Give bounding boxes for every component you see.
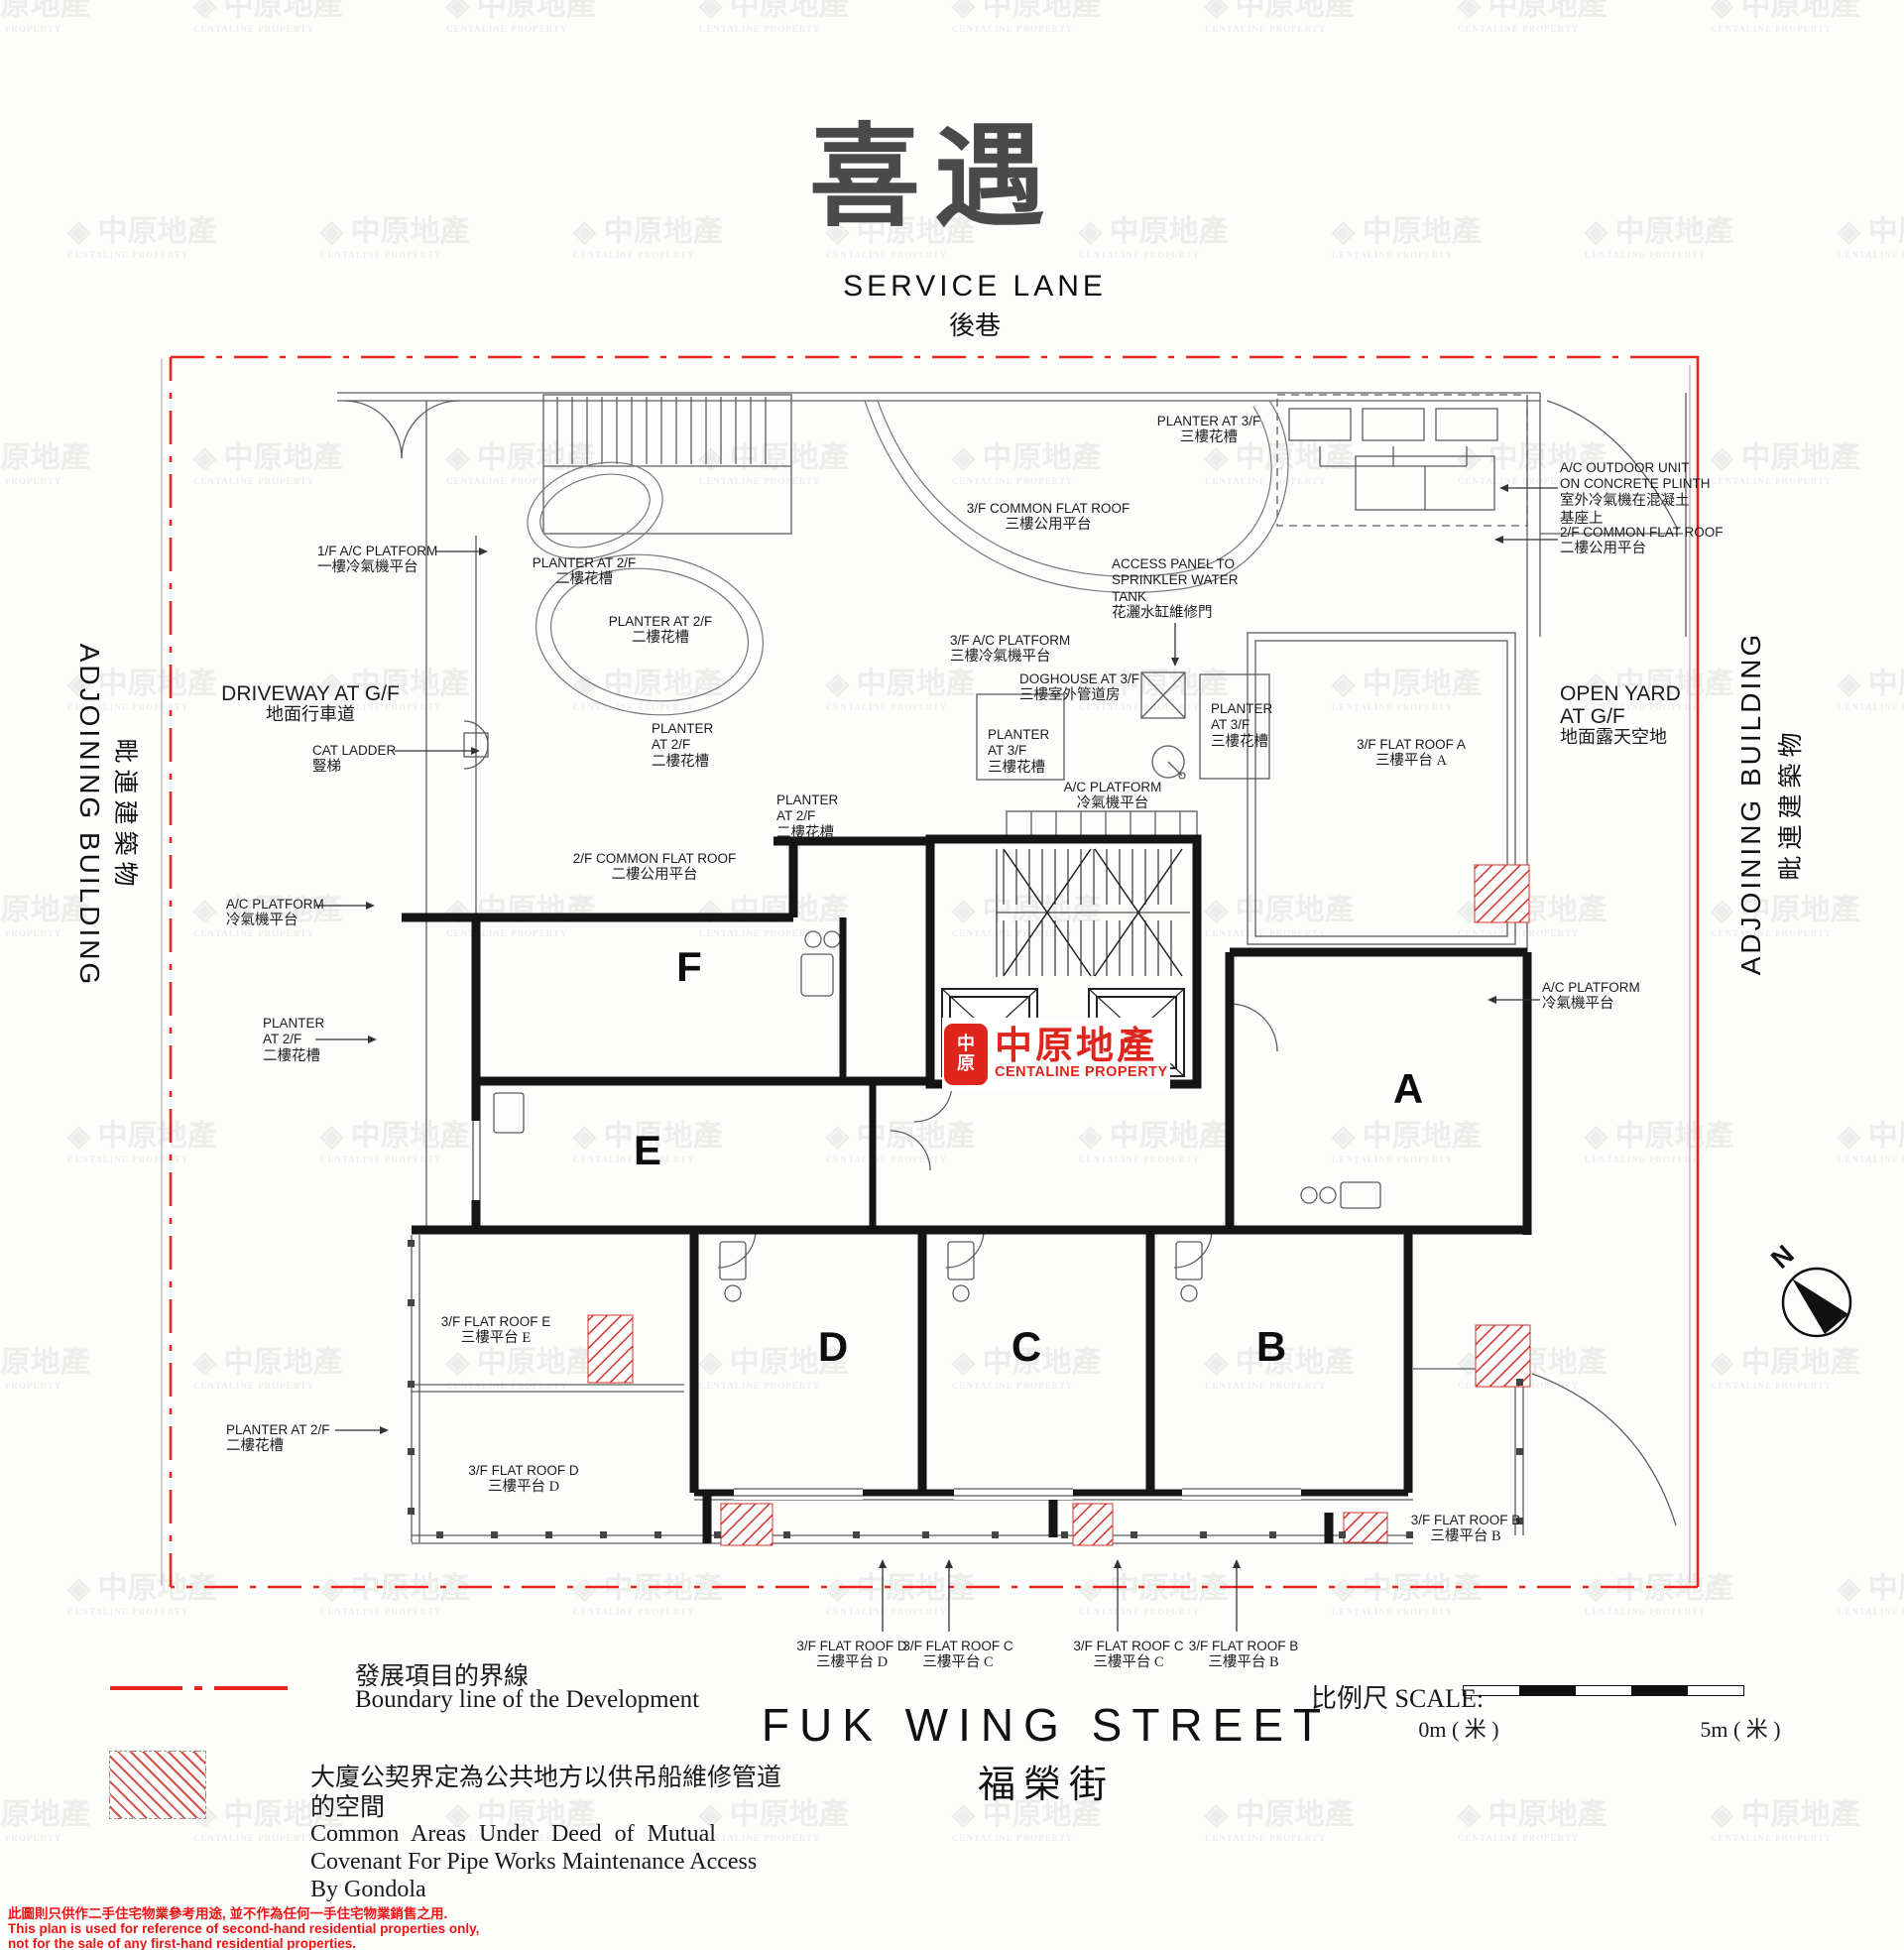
legend-boundary-sample <box>110 1686 288 1690</box>
label-doghouse: DOGHOUSE AT 3/F三樓室外管道房 <box>1019 671 1139 705</box>
label-planter-2f-6: PLANTER AT 2/F二樓花槽 <box>226 1422 330 1456</box>
unit-f: F <box>676 943 702 991</box>
disclaimer-en2: not for the sale of any first-hand resid… <box>8 1936 479 1950</box>
label-planter-2f-5: PLANTER AT 2/F二樓花槽 <box>263 1016 324 1066</box>
label-3f-flat-roof-a: 3/F FLAT ROOF A三樓平台 A <box>1357 737 1466 771</box>
label-3f-flat-roof-d: 3/F FLAT ROOF D三樓平台 D <box>796 1639 906 1672</box>
label-planter-2f-1: PLANTER AT 2/F二樓花槽 <box>533 555 637 589</box>
label-ac-platform-left: A/C PLATFORM冷氣機平台 <box>226 897 324 930</box>
disclaimer: 此圖則只供作二手住宅物業參考用途, 並不作為任何一手住宅物業銷售之用. This… <box>8 1906 479 1950</box>
unit-d: D <box>818 1323 848 1371</box>
label-3f-flat-roof-d-in: 3/F FLAT ROOF D三樓平台 D <box>468 1463 578 1497</box>
unit-c: C <box>1011 1323 1041 1371</box>
disclaimer-zh: 此圖則只供作二手住宅物業參考用途, 並不作為任何一手住宅物業銷售之用. <box>8 1906 479 1921</box>
legend-common-zh2: 的空間 <box>310 1787 385 1823</box>
annotation-arrows <box>315 488 1558 1632</box>
label-2f-common-flat-roof-right: 2/F COMMON FLAT ROOF二樓公用平台 <box>1560 525 1724 558</box>
scale-bar <box>1463 1685 1744 1696</box>
page-title: 喜遇 <box>809 87 1059 248</box>
label-driveway: DRIVEWAY AT G/F地面行車道 <box>221 682 400 725</box>
legend-boundary-en: Boundary line of the Development <box>355 1686 699 1714</box>
legend-common-en3: By Gondola <box>310 1877 426 1903</box>
compass-icon <box>1783 1269 1850 1336</box>
centaline-seal-icon: 中 原 <box>944 1024 988 1085</box>
label-3f-flat-roof-c1: 3/F FLAT ROOF C三樓平台 C <box>902 1639 1012 1672</box>
logo-zh: 中原地產 <box>995 1029 1168 1064</box>
dmc-hatched-areas <box>588 865 1530 1545</box>
label-planter-2f-2: PLANTER AT 2/F二樓花槽 <box>609 614 713 648</box>
label-ac-platform-center: A/C PLATFORM冷氣機平台 <box>1064 780 1162 813</box>
scale-end: 5m ( 米 ) <box>1700 1712 1780 1744</box>
label-planter-2f-3: PLANTER AT 2/F二樓花槽 <box>652 721 713 772</box>
unit-a: A <box>1393 1065 1423 1113</box>
arrowheads <box>366 484 1508 1568</box>
unit-b: B <box>1256 1323 1286 1371</box>
legend-common-en1: Common Areas Under Deed of Mutual <box>310 1821 716 1848</box>
legend-hatch-sample <box>109 1751 206 1819</box>
windows <box>469 1121 1301 1500</box>
label-access-panel: ACCESS PANEL TO SPRINKLER WATER TANK花灑水缸… <box>1112 556 1239 623</box>
label-2f-common-flat-roof-left: 2/F COMMON FLAT ROOF二樓公用平台 <box>573 851 737 885</box>
label-ac-platform-right: A/C PLATFORM冷氣機平台 <box>1542 980 1640 1014</box>
logo-en: CENTALINE PROPERTY <box>995 1064 1168 1080</box>
label-3f-flat-roof-b-in: 3/F FLAT ROOF B三樓平台 B <box>1411 1513 1521 1546</box>
label-3f-ac-platform: 3/F A/C PLATFORM三樓冷氣機平台 <box>950 633 1070 667</box>
label-open-yard: OPEN YARD AT G/F地面露天空地 <box>1560 682 1681 748</box>
street-fuk-wing: FUK WING STREET 福榮街 <box>762 1698 1331 1808</box>
legend-common-en2: Covenant For Pipe Works Maintenance Acce… <box>310 1849 757 1876</box>
street-service-lane: SERVICE LANE 後巷 <box>843 270 1107 342</box>
label-planter-3f-right: PLANTER AT 3/F三樓花槽 <box>1211 701 1272 752</box>
scale-start: 0m ( 米 ) <box>1418 1712 1498 1744</box>
scale-label: 比例尺 SCALE: <box>1311 1678 1484 1715</box>
label-planter-2f-4: PLANTER AT 2/F二樓花槽 <box>776 792 838 843</box>
adjoining-building-right: ADJOINING BUILDING 毗連建築物 <box>1735 632 1807 975</box>
adjoining-building-left: 毗連建築物 ADJOINING BUILDING <box>73 644 145 987</box>
floor-plan-page: ◈ 中原地產CENTALINE PROPERTY◈ 中原地產CENTALINE … <box>0 0 1904 1950</box>
label-1f-ac-platform: 1/F A/C PLATFORM一樓冷氣機平台 <box>317 544 437 577</box>
label-3f-flat-roof-c2: 3/F FLAT ROOF C三樓平台 C <box>1073 1639 1183 1672</box>
unit-e: E <box>634 1127 661 1174</box>
label-cat-ladder: CAT LADDER豎梯 <box>312 743 396 777</box>
label-ac-outdoor-unit: A/C OUTDOOR UNIT ON CONCRETE PLINTH室外冷氣機… <box>1560 460 1711 528</box>
label-3f-flat-roof-b: 3/F FLAT ROOF B三樓平台 B <box>1189 1639 1299 1672</box>
centaline-logo: 中 原 中原地產 CENTALINE PROPERTY <box>942 1018 1170 1091</box>
label-3f-flat-roof-e: 3/F FLAT ROOF E三樓平台 E <box>441 1314 551 1348</box>
label-3f-common-flat-roof: 3/F COMMON FLAT ROOF三樓公用平台 <box>967 501 1130 535</box>
label-planter-3f-top: PLANTER AT 3/F三樓花槽 <box>1157 414 1261 447</box>
disclaimer-en1: This plan is used for reference of secon… <box>8 1921 479 1936</box>
label-planter-3f-left: PLANTER AT 3/F三樓花槽 <box>988 727 1049 778</box>
walls-inner <box>694 917 1408 1493</box>
